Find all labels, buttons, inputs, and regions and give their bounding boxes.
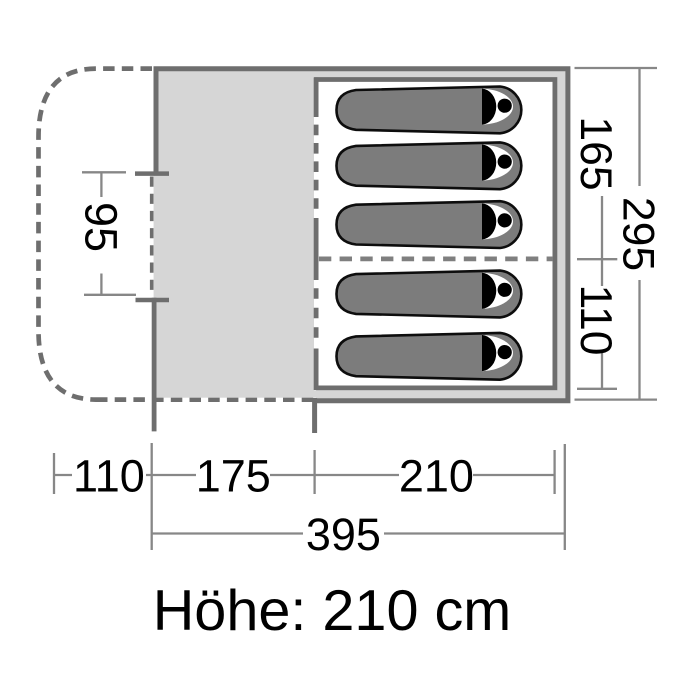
svg-text:165: 165 — [571, 116, 620, 190]
svg-text:395: 395 — [306, 509, 381, 560]
svg-text:95: 95 — [76, 202, 127, 252]
svg-text:175: 175 — [196, 450, 271, 501]
svg-text:210: 210 — [399, 450, 474, 501]
svg-text:110: 110 — [73, 450, 145, 501]
svg-text:110: 110 — [571, 285, 620, 356]
svg-text:295: 295 — [613, 197, 662, 271]
svg-text:Höhe: 210 cm: Höhe: 210 cm — [153, 579, 512, 643]
